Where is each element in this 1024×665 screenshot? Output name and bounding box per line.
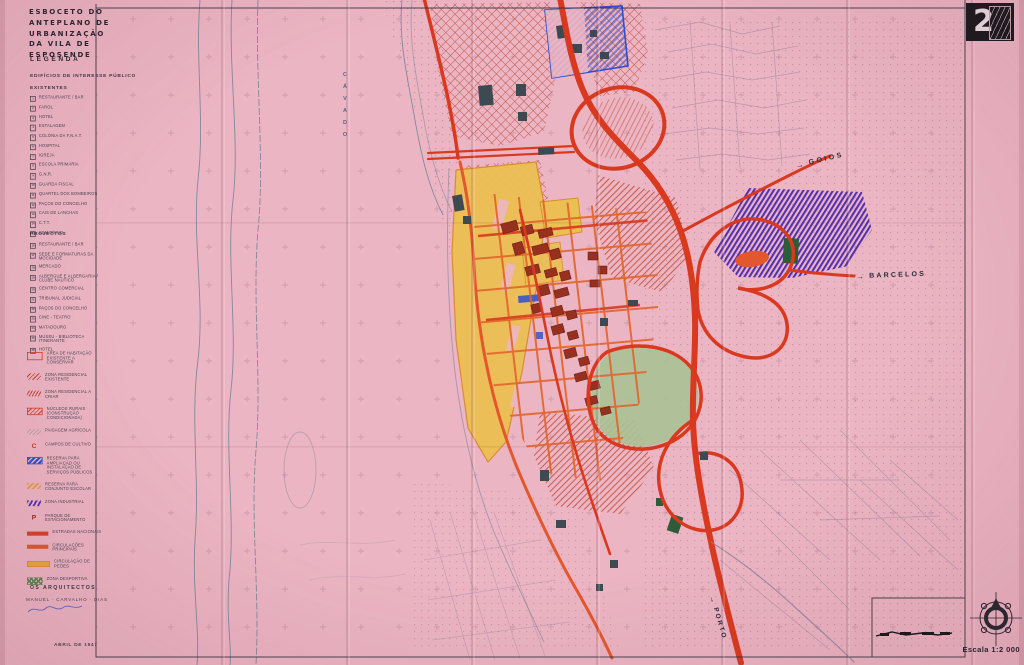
legend-item: 11 QUARTEL DOS BOMBEIROS [30,193,104,199]
item-number-marker: 9 [30,173,36,179]
legend-item: 6 HOSPITAL [30,144,104,150]
legend-zone-item: ESTRADAS NACIONAIS [27,531,106,536]
item-label: C.T.T. [39,222,100,226]
legend-item: 17 SEDE E FORMATURAS DA MOCIDADE [30,253,104,262]
legend-item: 21 TRIBUNAL JUDICIAL [30,297,104,303]
architect-signature [26,603,86,618]
river-label: CÁVADO [342,72,348,144]
item-label: GUARDA FISCAL [39,183,100,187]
item-number-marker: 4 [30,125,36,131]
zone-label: NÚCLEOS RURAIS (CONSTRUÇÃO CONDICIONADA) [47,407,99,421]
item-number-marker: 18 [30,265,36,271]
map-sheet: ESBOCETO DO ANTEPLANO DE URBANIZAÇÃO DA … [0,0,1024,665]
item-number-marker: 22 [30,307,36,313]
item-label: G.N.R. [39,173,100,177]
legend-item: 8 ESCOLA PRIMÁRIA [30,164,104,170]
item-label: HOSPITAL [39,144,100,148]
legend-item: 13 CAIS DE LANCHAS [30,212,104,218]
barcelos-text: BARCELOS [869,271,926,280]
legend-zone-item: PAISAGEM AGRÍCOLA [27,429,106,435]
legend-item: 7 IGREJA [30,154,104,160]
zone-label: ZONA RESIDENCIAL A CRIAR [45,391,97,400]
zone-swatch [27,483,41,489]
item-number-marker: 19 [30,275,36,281]
zone-swatch [27,457,43,465]
legend-item: 1 RESTAURANTE / BAR [30,96,104,102]
item-label: ESTALAGEM [39,125,100,129]
zone-label: CIRCULAÇÕES PRINCIPAIS [52,544,104,553]
legend-zone-item: ZONA RESIDENCIAL EXISTENTE [27,374,106,383]
legend-item: 12 PAÇOS DO CONCELHO [30,202,104,208]
zone-label: ZONA DESPORTIVA [47,578,99,583]
architects-names: MANUEL · CARVALHO · DIAS [26,597,108,602]
scale-label: Escala 1:2 000 [962,645,1020,654]
item-label: COLÓNIA DA F.N.A.T. [39,135,100,139]
item-label: CENTRO COMERCIAL [39,287,100,291]
item-label: IGREJA [39,154,100,158]
legend-existing-list: 1 RESTAURANTE / BAR 2 FAROL 3 HOTEL 4 ES… [30,96,104,241]
zone-swatch-glyph: C [32,443,37,449]
legend-zone-item: CIRCULAÇÃO DE PEÕES [27,561,106,570]
item-label: ALBERGUE E ALBERGARIA / CLUBE NÁUTICO [39,275,100,284]
item-label: PAÇOS DO CONCELHO [39,307,100,311]
zone-swatch [27,429,41,435]
item-number-marker: 21 [30,297,36,303]
item-number-marker: 13 [30,212,36,218]
plan-date: ABRIL DE 1947 [54,643,98,648]
title-line: URBANIZAÇÃO [29,29,99,40]
item-label: ESCOLA PRIMÁRIA [39,164,100,168]
legend-heading: LEGENDA [30,56,80,63]
zone-swatch [27,561,50,567]
legend-item: 5 COLÓNIA DA F.N.A.T. [30,135,104,141]
item-number-marker: 24 [30,326,36,332]
title-line: ESBOCETO DO [29,7,99,18]
zone-label: ÁREA DE HABITAÇÃO EXISTENTE A CONSERVAR [47,352,99,366]
item-number-marker: 12 [30,202,36,208]
compass-rose-icon [970,592,1022,646]
zone-swatch [27,374,41,380]
zone-swatch-glyph: P [32,514,36,520]
item-label: MUSEU - BIBLIOTECA ITINERANTE [39,336,100,345]
item-label: RESTAURANTE / BAR [39,243,100,247]
map-title: ESBOCETO DO ANTEPLANO DE URBANIZAÇÃO DA … [29,7,99,61]
architects-heading: OS ARQUITECTOS [30,585,96,591]
legend-item: 18 MERCADO [30,265,104,271]
legend-item: 23 CINE - TEATRO [30,316,104,322]
title-line: DA VILA DE [29,39,99,50]
item-number-marker: 6 [30,144,36,150]
zone-swatch [27,391,41,397]
legend-zone-item: ZONA INDUSTRIAL [27,500,106,506]
legend-item: 20 CENTRO COMERCIAL [30,287,104,293]
legend-zone-item: ZONA RESIDENCIAL A CRIAR [27,391,106,400]
zone-swatch [27,578,43,585]
item-label: MATADOURO [39,326,100,330]
item-number-marker: 16 [30,243,36,249]
legend-zone-item: NÚCLEOS RURAIS (CONSTRUÇÃO CONDICIONADA) [27,407,106,421]
legend-item: 22 PAÇOS DO CONCELHO [30,307,104,313]
sheet-number-stamp: 2 [966,3,1014,41]
legend-subheading-projects: PROJECTOS [30,232,66,237]
legend-zone-item: RESERVA PARA CONJUNTO ESCOLAR [27,483,106,492]
legend-zone-item: ZONA DESPORTIVA [27,578,106,585]
item-label: TRIBUNAL JUDICIAL [39,297,100,301]
zone-swatch [27,352,43,360]
zone-label: RESERVA PARA AMPLIAÇÃO OU INSTALAÇÃO DE … [47,457,99,475]
item-number-marker: 25 [30,336,36,342]
item-number-marker: 23 [30,316,36,322]
title-line: ANTEPLANO DE [29,18,99,29]
zone-swatch [27,407,43,415]
legend-projects-list: 16 RESTAURANTE / BAR 17 SEDE E FORMATURA… [30,243,104,358]
item-number-marker: 10 [30,183,36,189]
zone-label: ESTRADAS NACIONAIS [52,531,104,536]
arrow-icon: → [856,272,867,281]
legend-item: 16 RESTAURANTE / BAR [30,243,104,249]
map-canvas [0,0,1024,665]
legend-zone-item: ÁREA DE HABITAÇÃO EXISTENTE A CONSERVAR [27,352,106,366]
legend-item: 4 ESTALAGEM [30,125,104,131]
item-number-marker: 1 [30,96,36,102]
item-number-marker: 7 [30,154,36,160]
zone-swatch: P [27,514,41,520]
item-number-marker: 5 [30,135,36,141]
zone-swatch: C [27,443,41,449]
legend-zones-list: ÁREA DE HABITAÇÃO EXISTENTE A CONSERVAR … [27,352,106,593]
legend-item: 14 C.T.T. [30,222,104,228]
item-number-marker: 20 [30,287,36,293]
legend-item: 25 MUSEU - BIBLIOTECA ITINERANTE [30,336,104,345]
item-label: CINE - TEATRO [39,316,100,320]
zone-swatch [27,532,48,536]
zone-label: ZONA INDUSTRIAL [45,500,97,505]
zone-label: CIRCULAÇÃO DE PEÕES [54,561,106,570]
item-number-marker: 11 [30,193,36,199]
item-number-marker: 8 [30,164,36,170]
item-label: SEDE E FORMATURAS DA MOCIDADE [39,253,100,262]
zone-label: ZONA RESIDENCIAL EXISTENTE [45,374,97,383]
legend-section-buildings: EDIFÍCIOS DE INTERESSE PÚBLICO [30,74,136,79]
stamp-diagram-icon [989,6,1011,40]
legend-zone-item: C CAMPOS DE CULTIVO [27,443,106,449]
legend-zone-item: RESERVA PARA AMPLIAÇÃO OU INSTALAÇÃO DE … [27,457,106,475]
legend-item: 10 GUARDA FISCAL [30,183,104,189]
legend-zone-item: P PARQUE DE ESTACIONAMENTO [27,514,106,523]
legend-item: 3 HOTEL [30,115,104,121]
legend-item: 9 G.N.R. [30,173,104,179]
item-label: MERCADO [39,265,100,269]
item-label: FAROL [39,106,100,110]
zone-label: RESERVA PARA CONJUNTO ESCOLAR [45,483,97,492]
legend-item: 24 MATADOURO [30,326,104,332]
legend-item: 2 FAROL [30,106,104,112]
item-label: RESTAURANTE / BAR [39,96,100,100]
item-number-marker: 3 [30,115,36,121]
item-number-marker: 14 [30,222,36,228]
item-number-marker: 17 [30,253,36,259]
item-label: QUARTEL DOS BOMBEIROS [39,193,100,197]
zone-label: PAISAGEM AGRÍCOLA [45,429,97,434]
zone-label: PARQUE DE ESTACIONAMENTO [45,514,97,523]
legend-subheading-existing: EXISTENTES [30,86,67,91]
legend-item: 19 ALBERGUE E ALBERGARIA / CLUBE NÁUTICO [30,275,104,284]
item-number-marker: 2 [30,106,36,112]
legend-zone-item: CIRCULAÇÕES PRINCIPAIS [27,544,106,553]
zone-label: CAMPOS DE CULTIVO [45,443,97,448]
item-label: CAIS DE LANCHAS [39,212,100,216]
item-label: PAÇOS DO CONCELHO [39,202,100,206]
item-label: HOTEL [39,115,100,119]
zone-swatch [27,500,41,506]
zone-swatch [27,544,48,548]
